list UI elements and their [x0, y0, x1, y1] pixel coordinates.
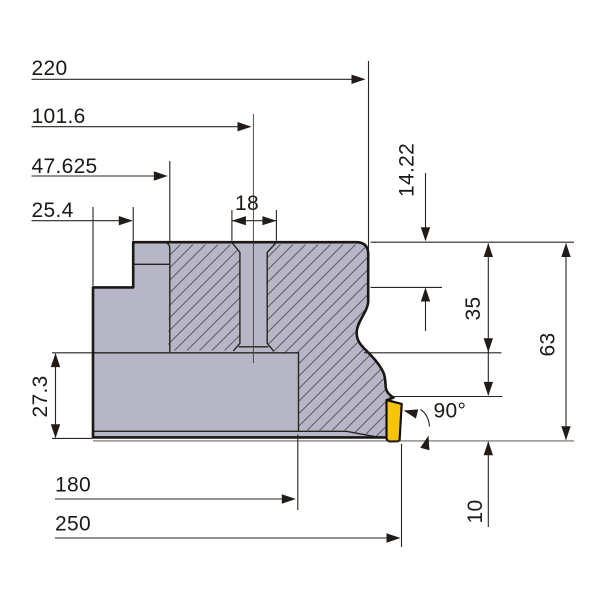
dim-label-14-22: 14.22 — [396, 143, 419, 197]
dim-label-180: 180 — [55, 474, 91, 497]
dim-label-63: 63 — [537, 333, 560, 357]
dim-label-35: 35 — [462, 297, 485, 321]
technical-drawing-page: 220 101.6 47.625 25.4 18 14.22 35 63 27.… — [0, 0, 600, 600]
dim-label-47-625: 47.625 — [32, 155, 98, 178]
dimension-250 — [55, 533, 401, 542]
dimension-27-3 — [51, 353, 60, 438]
dimension-63 — [561, 243, 570, 440]
dimension-14-22 — [421, 173, 430, 331]
dim-label-90deg: 90° — [434, 400, 467, 423]
angle-callout-90 — [402, 406, 433, 450]
dim-label-101-6: 101.6 — [32, 105, 86, 128]
dim-label-27-3: 27.3 — [29, 375, 52, 417]
dimension-35 — [484, 243, 493, 396]
dim-label-250: 250 — [55, 513, 91, 536]
hatch-region-left — [168, 245, 239, 351]
dim-label-18: 18 — [235, 192, 259, 215]
dim-label-10: 10 — [464, 500, 487, 524]
dim-label-220: 220 — [32, 57, 68, 80]
cutting-insert — [387, 400, 402, 441]
dimension-18 — [232, 216, 277, 225]
dim-label-25-4: 25.4 — [32, 199, 74, 222]
drawing-canvas: 220 101.6 47.625 25.4 18 14.22 35 63 27.… — [0, 0, 600, 600]
dimension-180 — [55, 494, 296, 503]
dimension-220 — [32, 75, 366, 84]
